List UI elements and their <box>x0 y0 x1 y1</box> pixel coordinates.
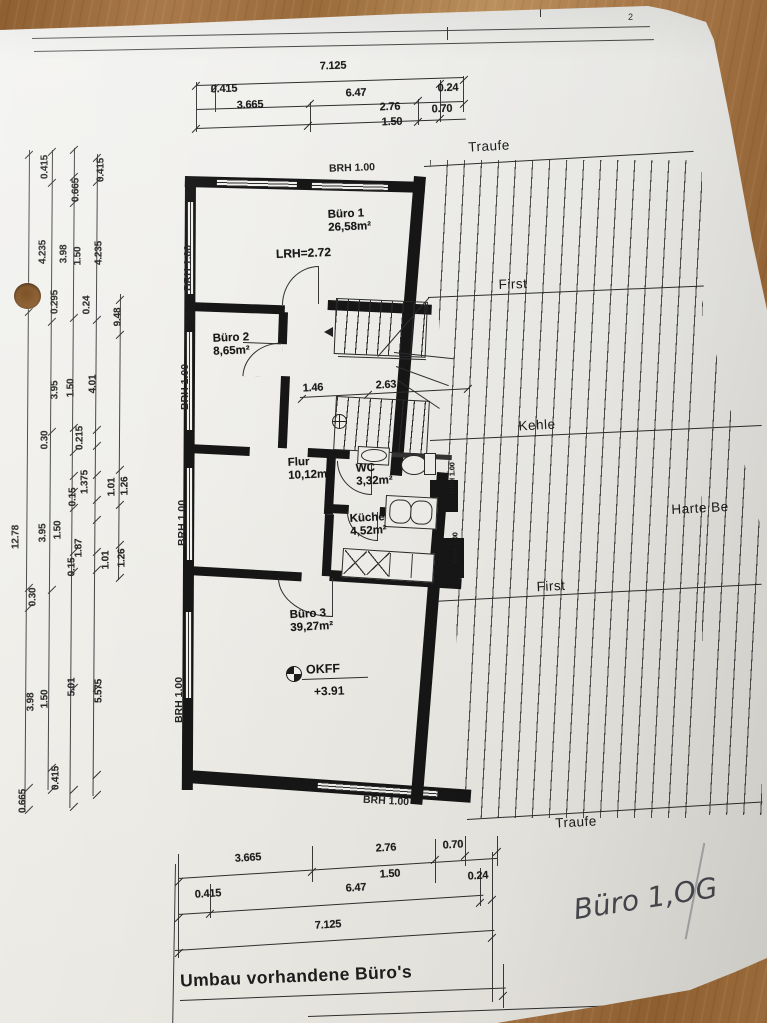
door-arc-buero1 <box>282 266 319 305</box>
dimension-label: 0.415 <box>194 887 221 901</box>
dimension-label: 1.50 <box>379 867 400 880</box>
dimension-label: 7.125 <box>314 918 341 932</box>
title-block-border <box>172 864 176 1023</box>
sink-bowl <box>410 500 433 525</box>
level-marker-value: +3.91 <box>314 683 345 698</box>
dimension-label: 2.76 <box>375 841 396 854</box>
level-marker-icon <box>286 666 302 682</box>
roof-hatch-area-right <box>702 300 762 815</box>
dimension-label: 4.01 <box>88 375 99 394</box>
room-area: 8,65m² <box>213 344 250 358</box>
dimension-label: 0.24 <box>467 869 488 882</box>
room-area: 39,27m² <box>290 620 333 635</box>
tick-mark <box>93 791 102 800</box>
dimension-line <box>196 77 464 86</box>
dimension-label: 1.26 <box>120 477 131 496</box>
dimension-label: 5.01 <box>67 678 78 697</box>
window <box>186 332 193 430</box>
extension-line <box>497 836 498 866</box>
punch-hole <box>14 283 41 309</box>
dimension-label: 1.50 <box>66 379 77 398</box>
dimension-label: 0.665 <box>71 178 82 202</box>
dimension-label: 0.415 <box>40 155 51 179</box>
interior-wall <box>188 444 250 456</box>
dimension-label: 9.48 <box>113 308 124 327</box>
dimension-chain-line <box>118 294 121 580</box>
window <box>186 468 193 560</box>
dimension-chain-line <box>93 154 99 796</box>
dimension-label: 4.235 <box>38 240 49 264</box>
extension-line <box>463 76 464 112</box>
interior-wall <box>329 504 349 514</box>
tick-mark <box>116 501 125 510</box>
room-area: 3,32m² <box>356 474 393 488</box>
room-label-buero1: Büro 1 26,58m² <box>328 207 372 235</box>
extension-line <box>312 846 313 882</box>
extension-line <box>178 854 179 958</box>
dimension-label: 0.215 <box>75 426 86 450</box>
interior-wall <box>188 302 285 314</box>
extension-line <box>210 884 211 918</box>
sheet-frame-line <box>34 39 654 52</box>
room-label-buero2: Büro 2 8,65m² <box>213 331 250 358</box>
room-label-kueche: Küche 4,52m² <box>349 511 387 539</box>
tick-mark <box>70 786 79 795</box>
extension-line <box>196 82 197 132</box>
dimension-label: 0.70 <box>442 838 463 851</box>
room-area: 10,12m² <box>288 468 331 483</box>
tick-mark <box>48 428 57 437</box>
dimension-label: 3.665 <box>234 851 261 865</box>
dimension-label: 1.87 <box>74 539 85 558</box>
dimension-label: 5.575 <box>94 679 105 703</box>
sink-bowl <box>389 499 412 524</box>
room-label-wc: WC 3,32m² <box>356 461 393 488</box>
interior-wall <box>278 312 288 344</box>
dimension-line <box>196 101 464 110</box>
dimension-line <box>175 930 494 951</box>
room-area: 26,58m² <box>328 220 371 235</box>
dimension-chain-line <box>69 148 75 808</box>
interior-wall <box>278 376 290 448</box>
extension-line <box>418 99 419 125</box>
dimension-label: 4.235 <box>94 241 105 265</box>
tick-mark <box>93 771 102 780</box>
washbasin-bowl <box>361 449 387 462</box>
dimension-label: 3.95 <box>38 524 49 543</box>
counter-cell-x <box>366 551 389 576</box>
stair-reference-symbol <box>332 414 347 429</box>
dimension-label: 6.47 <box>345 87 366 100</box>
extension-line <box>465 836 466 866</box>
tick-mark <box>70 424 79 433</box>
tick-mark <box>48 764 57 773</box>
dimension-label: 1.375 <box>80 470 91 494</box>
dimension-label: 0.30 <box>28 588 39 607</box>
dimension-label: 1.50 <box>53 521 64 540</box>
dimension-chain-line <box>24 150 30 812</box>
extension-line <box>435 839 436 883</box>
extension-line <box>480 868 481 906</box>
roof-hatch-area <box>430 160 702 818</box>
dimension-label: 0.70 <box>431 103 452 116</box>
interior-wall <box>322 514 334 576</box>
toilet-tank <box>424 453 436 475</box>
sheet-title: Umbau vorhandene Büro's <box>180 961 413 991</box>
fold-tick <box>447 27 448 40</box>
room-label-buero3: Büro 3 39,27m² <box>289 607 333 635</box>
dimension-label: 2.63 <box>375 378 396 391</box>
tick-mark <box>25 806 34 815</box>
level-marker-line <box>302 677 368 680</box>
tick-mark <box>70 803 79 812</box>
title-block-divider <box>503 964 504 1008</box>
dimension-label: 6.47 <box>345 881 366 894</box>
dimension-label: 12.78 <box>11 525 22 549</box>
dimension-label: 0.24 <box>82 296 93 315</box>
dimension-label: 1.01 <box>101 551 112 570</box>
tick-mark <box>116 541 125 550</box>
paper-sheet: 2 <box>0 0 767 1023</box>
dimension-label: 3.98 <box>59 245 70 264</box>
photo-of-floor-plan: 2 <box>0 0 767 1023</box>
dimension-label: 0.15 <box>68 488 79 507</box>
stair-flight-upper <box>334 298 428 358</box>
dimension-line <box>178 895 483 916</box>
brh-label: BRH 1.00 <box>329 161 376 175</box>
dimension-label: 0.415 <box>51 766 62 790</box>
dimension-label: 7.125 <box>320 60 347 73</box>
tick-mark <box>116 466 125 475</box>
dimension-chain-line <box>48 150 54 790</box>
tick-mark <box>93 426 102 435</box>
room-area: 4,52m² <box>350 524 387 539</box>
tick-mark <box>25 784 34 793</box>
duct-shaft <box>434 538 464 578</box>
dimension-line <box>196 119 466 130</box>
stair-direction-arrow-icon <box>324 327 333 337</box>
dimension-label: 1.46 <box>302 381 323 394</box>
roof-label: Traufe <box>468 137 510 154</box>
dimension-label: 3.98 <box>26 693 37 712</box>
dimension-label: 0.665 <box>18 789 29 813</box>
extension-line <box>310 102 311 132</box>
room-label-flur: Flur 10,12m² <box>288 455 332 483</box>
sheet-frame-line <box>32 26 650 39</box>
tick-mark <box>48 786 57 795</box>
dimension-label: 1.01 <box>107 478 118 497</box>
counter-cell-x <box>343 550 366 575</box>
room-note-lrh: LRH=2.72 <box>276 246 331 261</box>
window <box>185 612 192 698</box>
dimension-line <box>178 858 497 879</box>
extension-line <box>492 852 493 1002</box>
extension-line <box>440 80 441 122</box>
dimension-label: 0.30 <box>40 431 51 450</box>
door-leaf <box>318 266 319 304</box>
fold-number: 2 <box>628 12 633 22</box>
stair-flight-lower <box>333 396 430 455</box>
dimension-label: 3.665 <box>237 99 264 112</box>
extension-line <box>215 84 216 112</box>
tick-mark <box>116 574 125 583</box>
level-marker-label: OKFF <box>306 661 340 676</box>
window <box>187 202 194 294</box>
